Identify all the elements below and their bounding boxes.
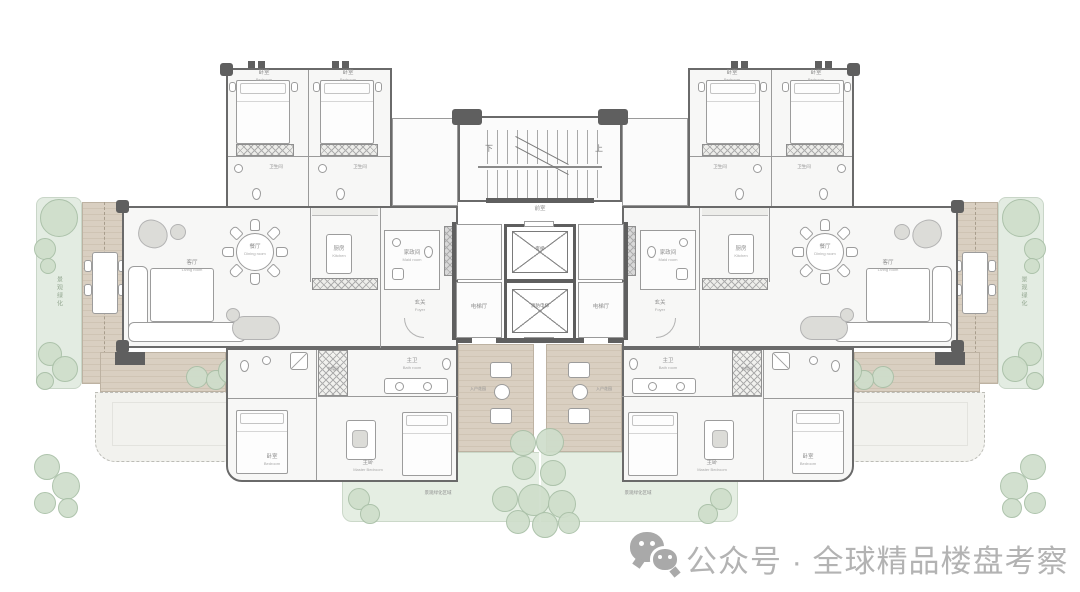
watermark: 公众号 · 全球精品楼盘考察 <box>0 0 1080 592</box>
floor-plan-canvas: 景观绿化区域 景观绿化区域 景观绿化 <box>0 0 1080 592</box>
watermark-text: 公众号 · 全球精品楼盘考察 <box>686 536 1069 581</box>
wechat-icon <box>630 528 684 582</box>
